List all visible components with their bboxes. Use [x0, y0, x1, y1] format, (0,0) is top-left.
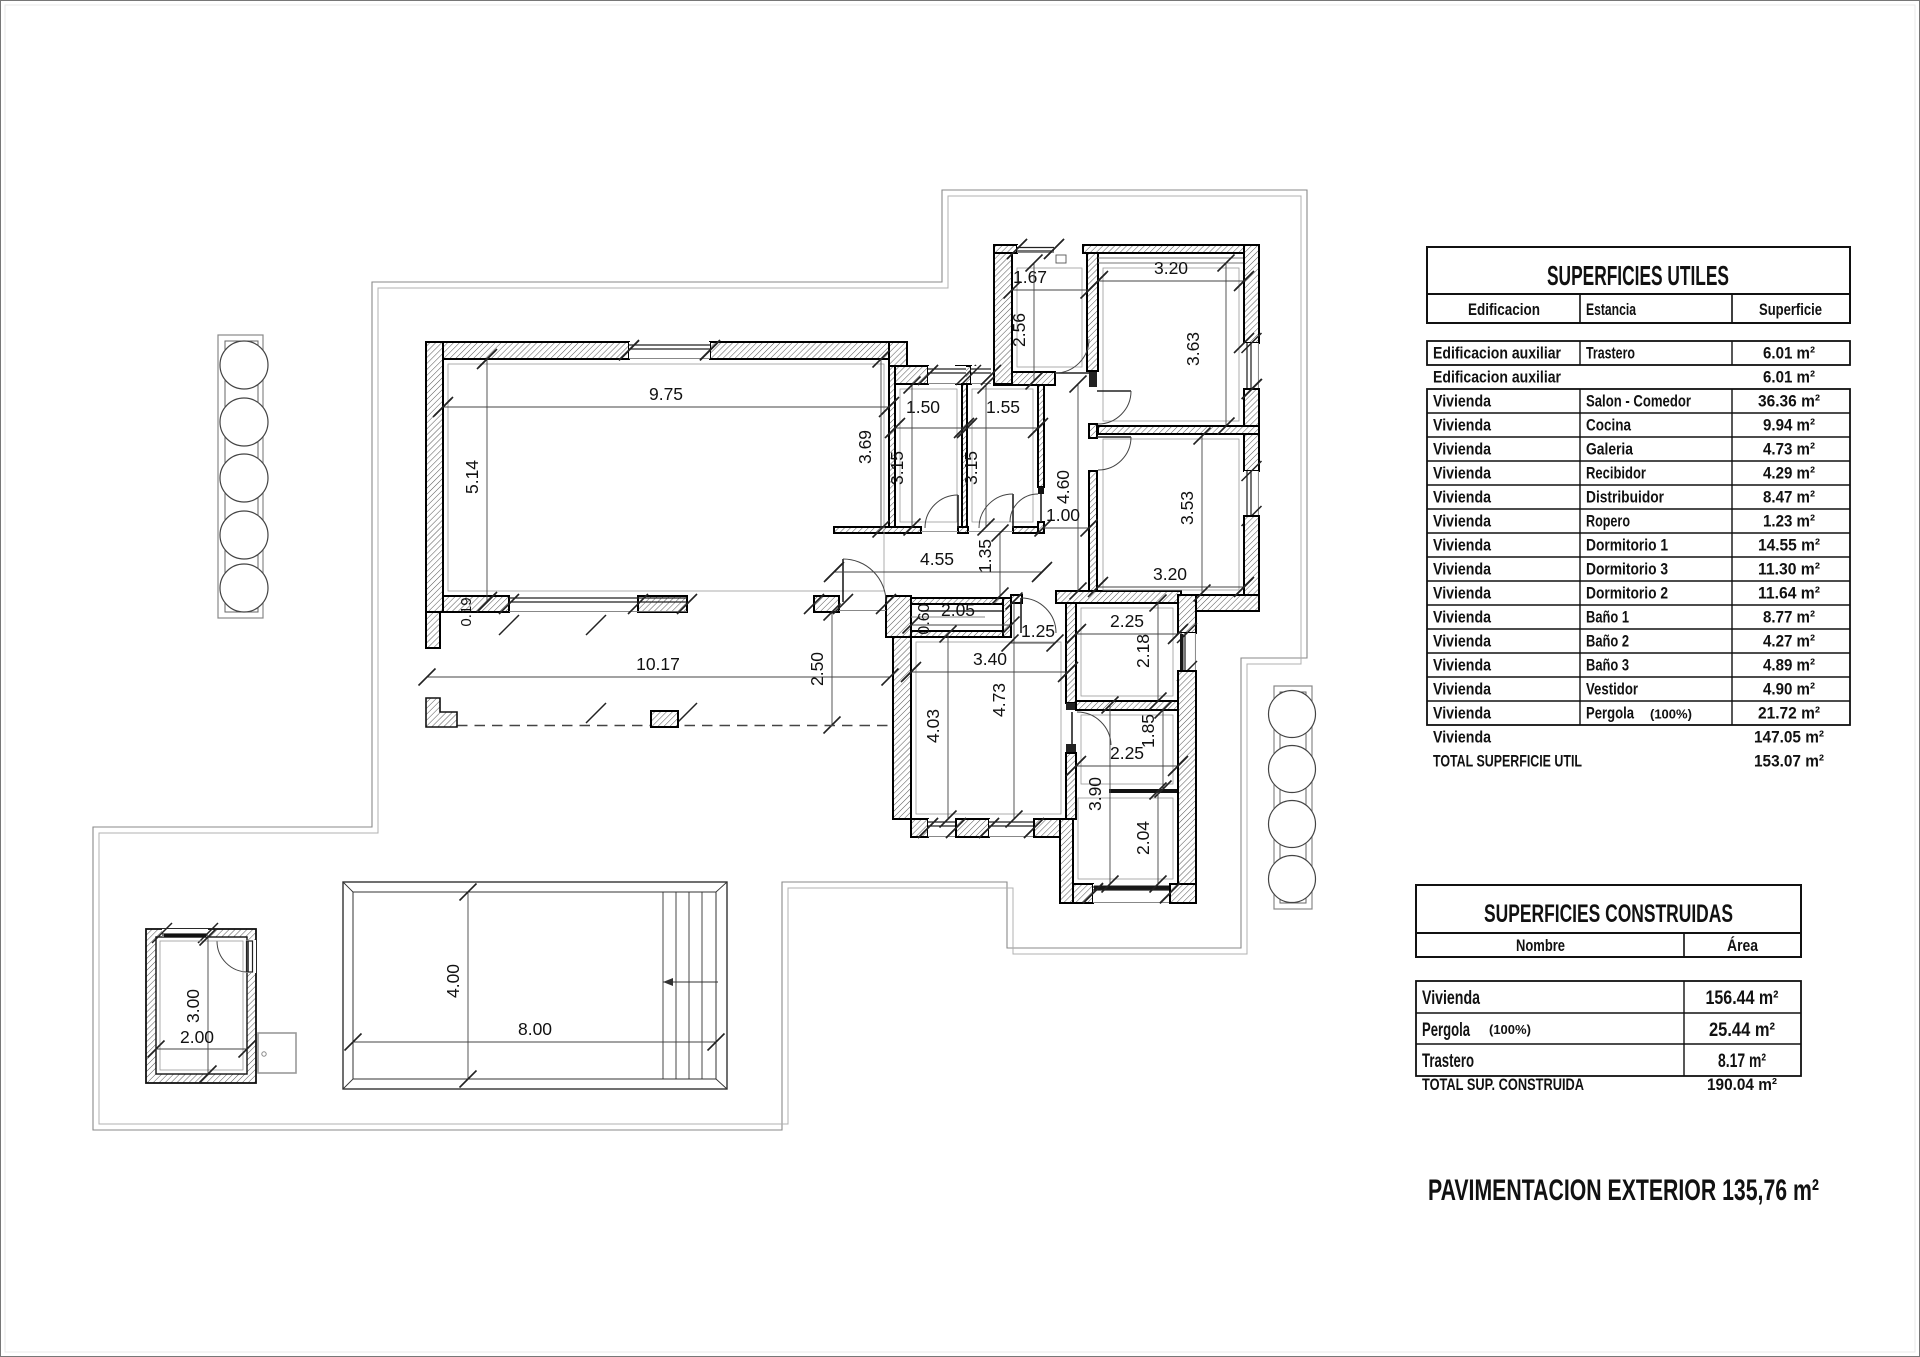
svg-text:11.30 m²: 11.30 m² [1758, 560, 1820, 579]
svg-text:Baño 2: Baño 2 [1586, 632, 1629, 651]
svg-text:2.04: 2.04 [1133, 821, 1153, 855]
svg-text:4.60: 4.60 [1053, 470, 1073, 504]
svg-text:21.72 m²: 21.72 m² [1758, 704, 1820, 723]
svg-text:0.19: 0.19 [458, 597, 475, 626]
svg-text:4.73 m²: 4.73 m² [1763, 440, 1815, 459]
svg-text:1.85: 1.85 [1138, 714, 1158, 748]
svg-text:Vestidor: Vestidor [1586, 680, 1638, 699]
svg-text:Vivienda: Vivienda [1433, 632, 1491, 651]
svg-text:8.47 m²: 8.47 m² [1763, 488, 1815, 507]
svg-text:1.55: 1.55 [986, 397, 1020, 417]
svg-text:SUPERFICIES UTILES: SUPERFICIES UTILES [1547, 260, 1729, 291]
svg-text:Edificacion: Edificacion [1468, 300, 1540, 319]
svg-text:3.20: 3.20 [1154, 258, 1188, 278]
svg-text:Vivienda: Vivienda [1433, 488, 1491, 507]
svg-text:4.27 m²: 4.27 m² [1763, 632, 1815, 651]
svg-text:156.44 m²: 156.44 m² [1706, 988, 1779, 1009]
svg-text:SUPERFICIES CONSTRUIDAS: SUPERFICIES CONSTRUIDAS [1484, 900, 1733, 928]
svg-text:Nombre: Nombre [1516, 936, 1565, 955]
svg-text:3.00: 3.00 [183, 989, 203, 1023]
svg-text:Vivienda: Vivienda [1433, 728, 1491, 747]
svg-text:9.94 m²: 9.94 m² [1763, 416, 1815, 435]
svg-text:(100%): (100%) [1489, 1022, 1531, 1037]
svg-text:Distribuidor: Distribuidor [1586, 488, 1664, 507]
svg-text:1.67: 1.67 [1013, 267, 1047, 287]
svg-text:14.55 m²: 14.55 m² [1758, 536, 1820, 555]
svg-text:36.36 m²: 36.36 m² [1758, 392, 1820, 411]
svg-text:3.69: 3.69 [855, 430, 875, 464]
svg-text:4.73: 4.73 [989, 683, 1009, 717]
svg-text:Edificacion auxiliar: Edificacion auxiliar [1433, 344, 1561, 363]
svg-text:Galeria: Galeria [1586, 440, 1633, 459]
svg-text:3.40: 3.40 [973, 649, 1007, 669]
svg-text:TOTAL SUP. CONSTRUIDA: TOTAL SUP. CONSTRUIDA [1422, 1075, 1584, 1094]
svg-text:Área: Área [1727, 936, 1758, 955]
svg-text:Vivienda: Vivienda [1433, 584, 1491, 603]
svg-text:4.00: 4.00 [443, 964, 463, 998]
svg-text:Vivienda: Vivienda [1433, 704, 1491, 723]
svg-text:153.07 m²: 153.07 m² [1754, 752, 1824, 771]
svg-text:Cocina: Cocina [1586, 416, 1631, 435]
svg-text:4.29 m²: 4.29 m² [1763, 464, 1815, 483]
svg-text:1.50: 1.50 [906, 397, 940, 417]
svg-text:Trastero: Trastero [1422, 1051, 1474, 1072]
svg-text:11.64 m²: 11.64 m² [1758, 584, 1820, 603]
svg-text:2.18: 2.18 [1133, 634, 1153, 668]
svg-text:190.04 m²: 190.04 m² [1707, 1075, 1777, 1094]
svg-text:Salon - Comedor: Salon - Comedor [1586, 392, 1691, 411]
svg-text:8.77 m²: 8.77 m² [1763, 608, 1815, 627]
svg-text:Vivienda: Vivienda [1433, 392, 1491, 411]
svg-text:Dormitorio 1: Dormitorio 1 [1586, 536, 1668, 555]
svg-text:Vivienda: Vivienda [1433, 440, 1491, 459]
svg-text:Vivienda: Vivienda [1433, 536, 1491, 555]
svg-text:1.23 m²: 1.23 m² [1763, 512, 1815, 531]
svg-text:Trastero: Trastero [1586, 344, 1635, 363]
svg-text:Dormitorio 2: Dormitorio 2 [1586, 584, 1668, 603]
svg-text:3.15: 3.15 [887, 451, 907, 485]
svg-text:8.00: 8.00 [518, 1019, 552, 1039]
svg-text:4.90 m²: 4.90 m² [1763, 680, 1815, 699]
svg-text:Superficie: Superficie [1759, 300, 1822, 319]
svg-text:TOTAL SUPERFICIE UTIL: TOTAL SUPERFICIE UTIL [1433, 752, 1582, 771]
svg-text:1.25: 1.25 [1021, 621, 1055, 641]
svg-text:1.35: 1.35 [975, 539, 995, 573]
svg-text:Vivienda: Vivienda [1433, 680, 1491, 699]
svg-text:4.89 m²: 4.89 m² [1763, 656, 1815, 675]
svg-text:Vivienda: Vivienda [1433, 416, 1491, 435]
svg-text:3.63: 3.63 [1183, 332, 1203, 366]
svg-text:4.03: 4.03 [923, 709, 943, 743]
svg-text:Baño 1: Baño 1 [1586, 608, 1629, 627]
svg-text:Ropero: Ropero [1586, 512, 1630, 531]
svg-text:Pergola: Pergola [1586, 704, 1634, 723]
svg-text:Vivienda: Vivienda [1433, 464, 1491, 483]
svg-text:Edificacion auxiliar: Edificacion auxiliar [1433, 368, 1561, 387]
svg-text:Vivienda: Vivienda [1433, 608, 1491, 627]
svg-text:147.05 m²: 147.05 m² [1754, 728, 1824, 747]
svg-text:3.90: 3.90 [1085, 777, 1105, 811]
svg-text:Baño 3: Baño 3 [1586, 656, 1629, 675]
svg-text:Dormitorio 3: Dormitorio 3 [1586, 560, 1668, 579]
svg-text:3.53: 3.53 [1177, 491, 1197, 525]
svg-text:Vivienda: Vivienda [1422, 988, 1480, 1009]
svg-text:1.00: 1.00 [1046, 505, 1080, 525]
svg-text:Vivienda: Vivienda [1433, 656, 1491, 675]
svg-text:6.01 m²: 6.01 m² [1763, 368, 1815, 387]
svg-text:(100%): (100%) [1650, 707, 1692, 722]
svg-text:8.17 m²: 8.17 m² [1718, 1051, 1766, 1072]
svg-text:PAVIMENTACION EXTERIOR 135,76: PAVIMENTACION EXTERIOR 135,76 m² [1428, 1174, 1819, 1207]
svg-text:2.00: 2.00 [180, 1027, 214, 1047]
svg-text:2.56: 2.56 [1009, 313, 1029, 347]
svg-text:2.05: 2.05 [941, 600, 975, 620]
svg-text:2.50: 2.50 [807, 652, 827, 686]
svg-text:Recibidor: Recibidor [1586, 464, 1646, 483]
svg-text:Vivienda: Vivienda [1433, 560, 1491, 579]
svg-text:Estancia: Estancia [1586, 300, 1636, 319]
svg-text:9.75: 9.75 [649, 384, 683, 404]
svg-text:2.25: 2.25 [1110, 611, 1144, 631]
svg-text:Pergola: Pergola [1422, 1020, 1470, 1041]
svg-text:25.44 m²: 25.44 m² [1709, 1020, 1775, 1041]
svg-text:Vivienda: Vivienda [1433, 512, 1491, 531]
svg-text:3.20: 3.20 [1153, 564, 1187, 584]
svg-text:5.14: 5.14 [462, 460, 482, 494]
svg-text:10.17: 10.17 [636, 654, 680, 674]
svg-text:4.55: 4.55 [920, 549, 954, 569]
svg-text:0.60: 0.60 [916, 603, 933, 634]
svg-text:6.01 m²: 6.01 m² [1763, 344, 1815, 363]
svg-text:3.15: 3.15 [961, 451, 981, 485]
